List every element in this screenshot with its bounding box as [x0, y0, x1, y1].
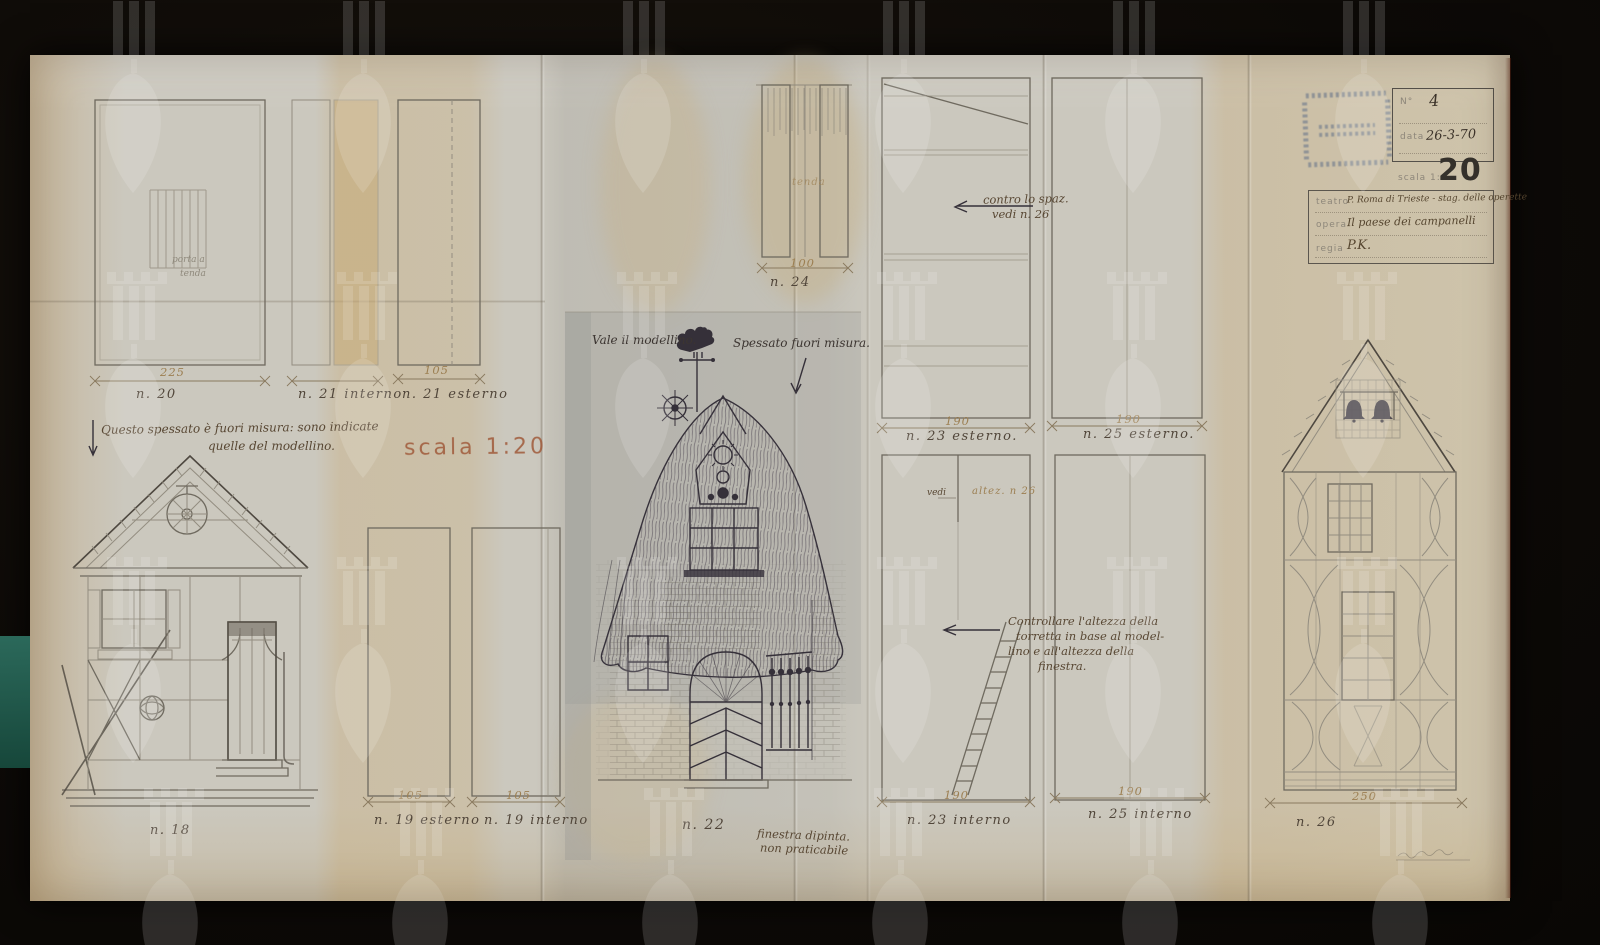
label-n25-esterno: n. 25 esterno. — [1083, 428, 1195, 441]
center-window — [1342, 592, 1394, 700]
label-n23-esterno: n. 23 esterno. — [906, 430, 1018, 443]
drawing-n18 — [62, 456, 318, 806]
torretta-note-line3: lino e all'altezza della — [1008, 646, 1134, 658]
dim-n20: 225 — [160, 367, 185, 379]
label-n20: n. 20 — [136, 388, 177, 401]
torretta-note-line1: Controllare l'altezza della — [1008, 616, 1158, 628]
upper-window — [1328, 484, 1372, 552]
vale-modellino-note: Vale il modellino. — [592, 334, 696, 346]
dim-n24: 100 — [790, 258, 815, 270]
label-n23-interno: n. 23 interno — [907, 814, 1012, 827]
dim-n19i: 105 — [506, 790, 531, 802]
spessato-note: Spessato fuori misura. — [733, 337, 870, 349]
drawing-n23-esterno — [877, 78, 1035, 433]
date-value: 26-3-70 — [1426, 128, 1477, 143]
date-label: data — [1400, 133, 1424, 142]
drawing-n23-interno — [877, 455, 1035, 807]
dim-n26: 250 — [1352, 791, 1377, 803]
drawing-n22 — [565, 312, 861, 860]
drawing-n21-esterno — [393, 100, 485, 384]
stamp-text-column — [1302, 101, 1309, 159]
drawing-n25-esterno — [1047, 78, 1207, 431]
label-n26: n. 26 — [1296, 816, 1337, 829]
shuttered-window — [88, 590, 180, 659]
dim-n23e: 190 — [945, 416, 970, 428]
divider — [1315, 235, 1487, 236]
contro-note-line1: contro lo spaz. — [983, 193, 1069, 206]
dim-n25i: 190 — [1118, 786, 1143, 798]
stamp-text-row — [1319, 123, 1375, 129]
torretta-note-line2: torretta in base al model- — [1016, 631, 1164, 643]
drawing-n26 — [1265, 340, 1467, 808]
weathervane-star-icon — [657, 390, 693, 426]
label-n18: n. 18 — [150, 824, 191, 837]
number-label: N° — [1400, 98, 1413, 107]
label-n21-interno: n. 21 interno — [298, 388, 403, 401]
regia-label: regia — [1316, 245, 1344, 254]
porta-tenda-note-line2: tenda — [180, 270, 206, 279]
torretta-note-line4: finestra. — [1038, 661, 1086, 673]
drawing-n20 — [90, 100, 270, 386]
stamp-text-row — [1319, 131, 1375, 137]
wheel-ornament-icon — [167, 486, 207, 534]
label-n21-esterno: n. 21 esterno — [402, 388, 509, 401]
signature-mark — [1396, 850, 1470, 860]
label-n24: n. 24 — [770, 276, 811, 289]
thickness-note-line2: quelle del modellino. — [208, 440, 335, 452]
drawing-n19-esterno — [363, 528, 455, 807]
label-n22: n. 22 — [682, 818, 725, 832]
scale-stamp: scala 1:20 — [404, 436, 547, 459]
production-info-box: teatro P. Roma di Trieste - stag. delle … — [1308, 190, 1494, 264]
divider — [1399, 123, 1487, 124]
porta-tenda-note-line1: porta a — [172, 256, 205, 265]
label-n25-interno: n. 25 interno — [1088, 808, 1193, 821]
divider — [1315, 257, 1487, 258]
opera-label: opera — [1316, 221, 1347, 230]
drawing-n21-interno — [287, 100, 383, 386]
note-arrow-down — [89, 420, 97, 455]
label-n19-esterno: n. 19 esterno — [374, 814, 481, 827]
teatro-label: teatro — [1316, 198, 1349, 207]
scanned-drawing-sheet: .pl{stroke:#938d80;stroke-width:1;fill:n… — [0, 0, 1600, 945]
dim-n21e: 105 — [424, 365, 449, 377]
altezza-note: altez. n 26 — [972, 487, 1036, 497]
scale-prefix: scala 1: — [1398, 174, 1441, 183]
regia-value: P.K. — [1347, 239, 1371, 252]
house-door — [216, 622, 288, 776]
dim-n23i: 190 — [944, 790, 969, 802]
label-n19-interno: n. 19 interno — [484, 814, 589, 827]
tenda-note: tenda — [792, 178, 826, 188]
divider — [1315, 212, 1487, 213]
contro-note-line2: vedi n. 26 — [992, 209, 1049, 221]
finestra-note-line2: non praticabile — [760, 842, 849, 857]
scale-value: 20 — [1438, 156, 1482, 186]
drawing-n19-interno — [467, 528, 565, 807]
vedi-note: vedi — [927, 489, 946, 498]
thickness-note-line1: Questo spessato è fuori misura: sono ind… — [101, 420, 379, 436]
dim-n25e: 190 — [1116, 414, 1141, 426]
opera-value: Il paese dei campanelli — [1347, 215, 1476, 228]
number-date-box: N° 4 data 26-3-70 — [1392, 88, 1494, 162]
workshop-stamp-illegible — [1302, 90, 1393, 167]
number-value: 4 — [1428, 93, 1440, 110]
dim-n19e: 105 — [398, 790, 423, 802]
